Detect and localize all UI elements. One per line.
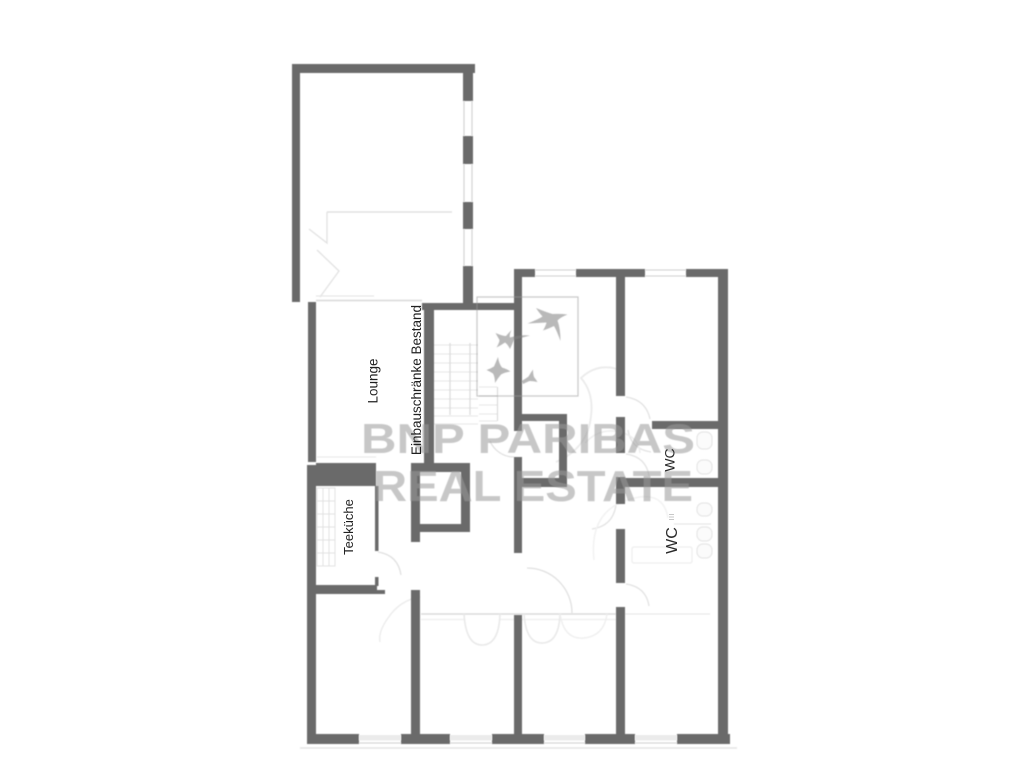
svg-text:REAL ESTATE: REAL ESTATE (373, 462, 693, 511)
svg-text:Lounge: Lounge (366, 358, 381, 403)
svg-text:Einbauschränke Bestand: Einbauschränke Bestand (409, 305, 424, 455)
svg-text:WC: WC (662, 448, 678, 471)
svg-text:ııı: ııı (666, 513, 676, 521)
svg-text:WC: WC (664, 527, 681, 554)
svg-text:Teeküche: Teeküche (341, 499, 356, 555)
